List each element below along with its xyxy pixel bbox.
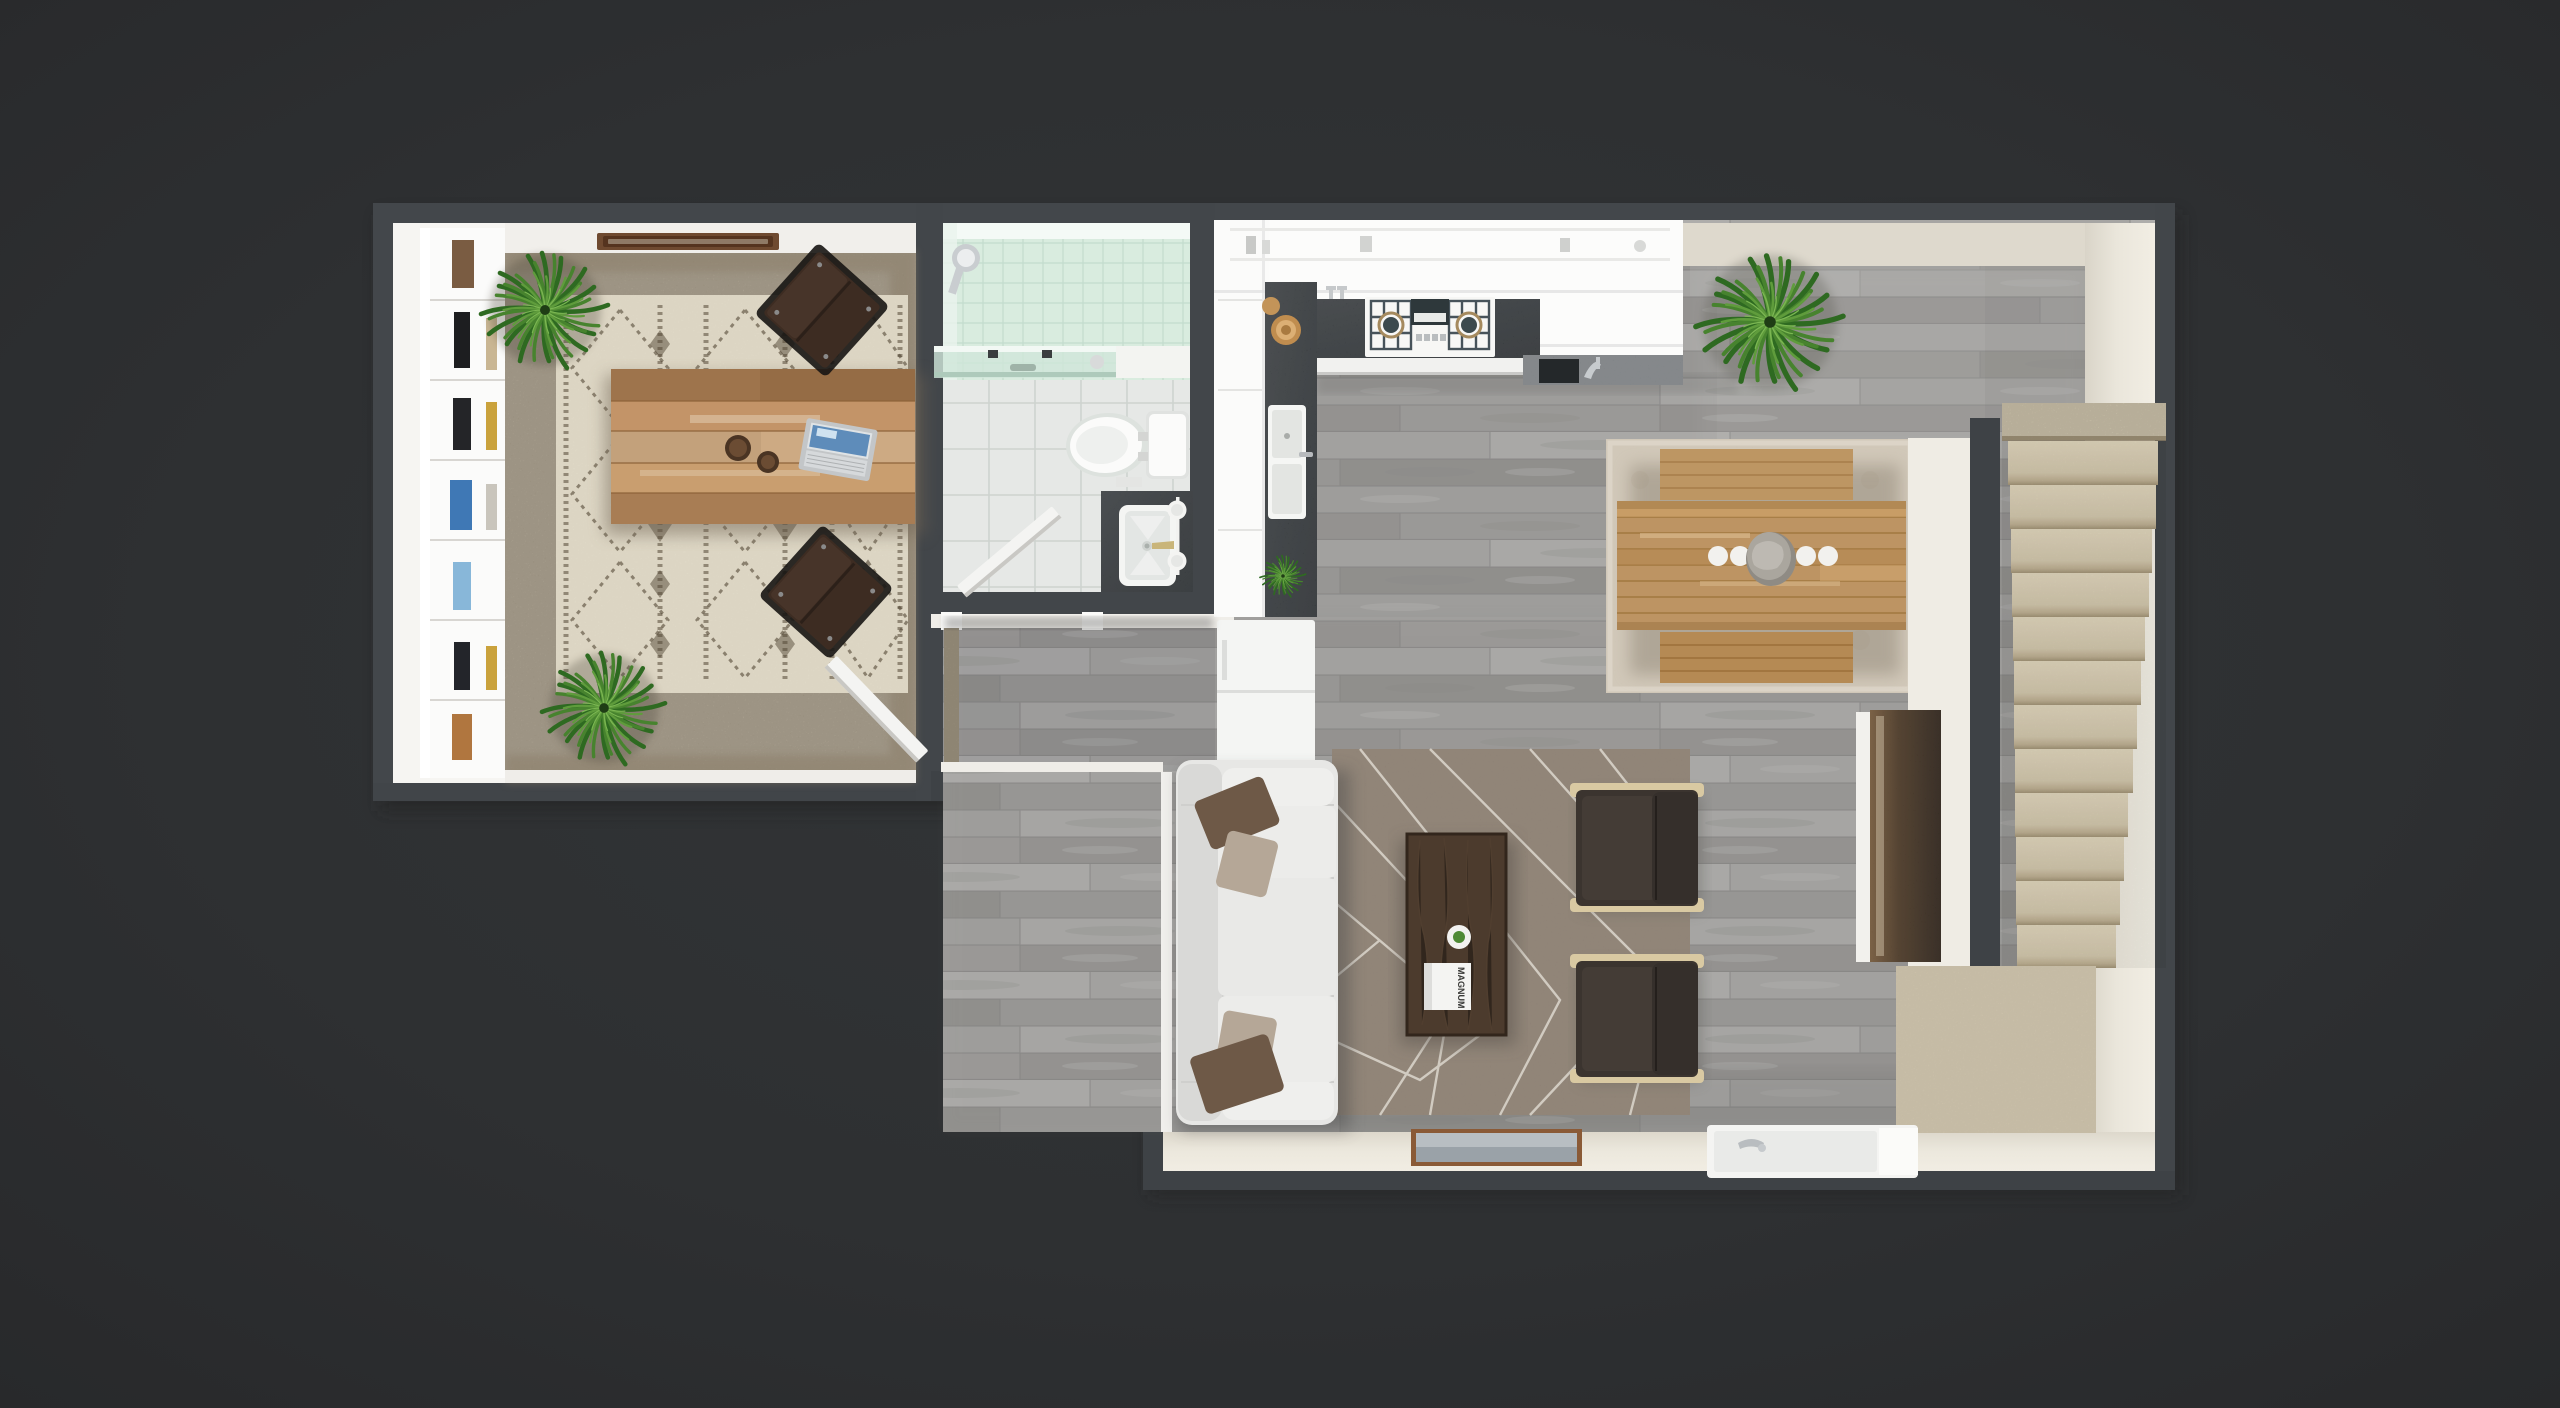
svg-text:MAGNUM: MAGNUM xyxy=(1456,967,1466,1009)
